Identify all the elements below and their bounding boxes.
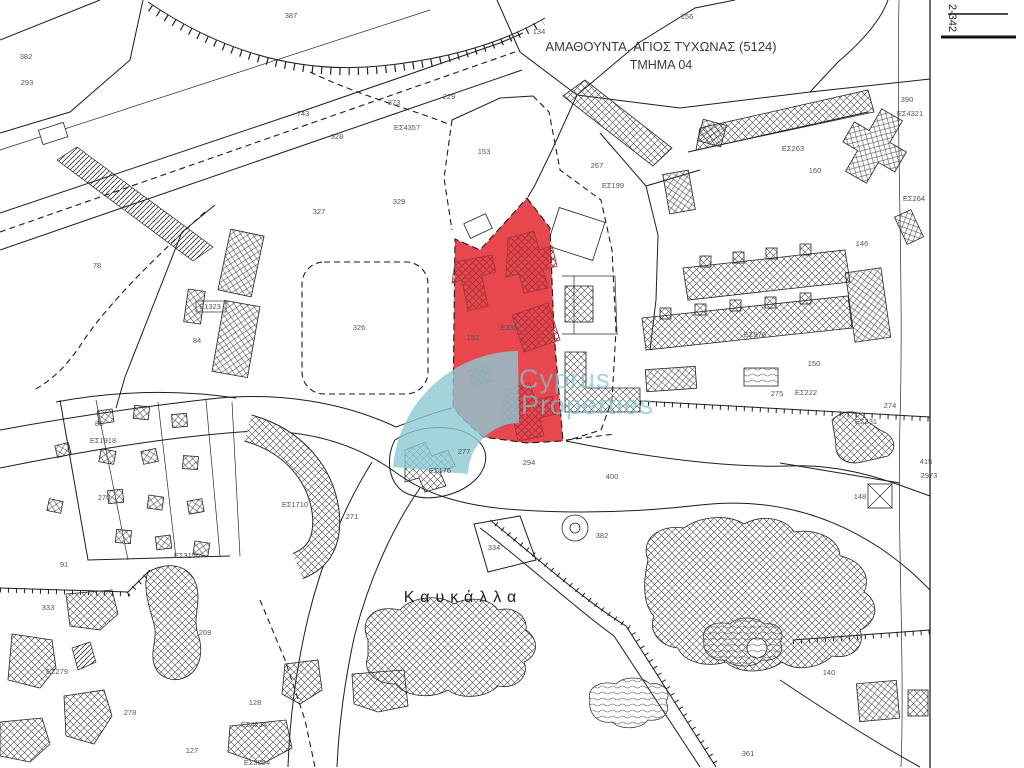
parcel-label: 327	[313, 207, 326, 216]
parcel-label: 274	[884, 401, 897, 410]
parcel-label: Ε335	[500, 323, 518, 332]
parcel-label: 140	[823, 668, 836, 677]
parcel-label: 2973	[921, 471, 938, 480]
parcel-label: 91	[60, 560, 68, 569]
parcel-label: 128	[249, 698, 262, 707]
parcel-label: 84	[193, 336, 201, 345]
parcel-label: ΕΣ976	[744, 330, 766, 339]
parcel-label: ΕΣ279	[46, 667, 68, 676]
building-148	[868, 484, 892, 508]
parcel-label: 328	[331, 132, 344, 141]
parcel-label: 294	[523, 458, 536, 467]
parcel-label: Ε1323	[199, 302, 221, 311]
parcel-label: 334	[488, 543, 501, 552]
parcel-label: ΕΣ1918	[90, 436, 116, 445]
parcel-label: ΕΣ1710	[282, 500, 308, 509]
parcel-label: ΕΣ3156	[174, 551, 200, 560]
parcel-label: 275	[771, 389, 784, 398]
parcel-label: 415	[920, 457, 933, 466]
parcel-label: 148	[854, 492, 867, 501]
parcel-label: ΕΣ264	[903, 194, 925, 203]
parcel-label: ΕΣ231	[855, 417, 877, 426]
parcel-label: ΕΣ222	[795, 388, 817, 397]
parcel-label: 160	[809, 166, 822, 175]
parcel-label: 153	[478, 147, 491, 156]
parcel-label: 270	[98, 493, 111, 502]
sheet-margin: 2-342	[930, 0, 1024, 768]
map-title: ΑΜΑΘΟΥΝΤΑ, ΑΓΙΟΣ ΤΥΧΩΝΑΣ (5124)	[545, 39, 776, 54]
place-name: Καυκάλλα	[404, 589, 523, 606]
parcel-label: 361	[742, 749, 755, 758]
parcel-label: 400	[606, 472, 619, 481]
parcel-label: 86	[95, 419, 103, 428]
map-subtitle: ΤΜΗΜΑ 04	[630, 58, 693, 72]
parcel-label: 78	[93, 261, 101, 270]
parcel-label: 269	[199, 628, 212, 637]
parcel-label: ΕΣ3094	[244, 758, 270, 767]
parcel-label: 150	[808, 359, 821, 368]
parcel-label: 382	[20, 52, 33, 61]
parcel-label: 382	[596, 531, 609, 540]
parcel-label: 387	[285, 11, 298, 20]
parcel-label: 390	[901, 95, 914, 104]
parcel-label: 267	[591, 161, 604, 170]
sheet-reference: 2-342	[946, 4, 958, 32]
parcel-label: 743	[297, 109, 310, 118]
parcel-label: 134	[533, 27, 546, 36]
watermark-line2: Properties	[521, 390, 654, 420]
parcel-label: 146	[856, 239, 869, 248]
parcel-label: 326	[353, 323, 366, 332]
map-canvas: Cyprus Properties 2-342 ΑΜΑΘΟΥΝΤΑ, ΑΓΙΟΣ…	[0, 0, 1024, 768]
parcel-label: ΕΣ4234	[241, 720, 267, 729]
cadastral-map-sheet: Cyprus Properties 2-342 ΑΜΑΘΟΥΝΤΑ, ΑΓΙΟΣ…	[0, 0, 1024, 768]
parcel-label: 127	[186, 746, 199, 755]
parcel-label: 333	[42, 603, 55, 612]
parcel-label: 278	[124, 708, 137, 717]
parcel-label: ΕΣ176	[429, 466, 451, 475]
parcel-label: 293	[21, 78, 34, 87]
parcel-label: 277	[458, 447, 471, 456]
parcel-label: ΕΣ263	[782, 144, 804, 153]
parcel-label: 329	[393, 197, 406, 206]
parcel-label: ΕΣ199	[602, 181, 624, 190]
parcel-label: 373	[388, 98, 401, 107]
parcel-label: 229	[443, 92, 456, 101]
parcel-label: 152	[467, 333, 480, 342]
parcel-label: 156	[681, 12, 694, 21]
parcel-label: ΕΣ4321	[897, 109, 923, 118]
parcel-label: ΕΣ4357	[394, 123, 420, 132]
parcel-label: 271	[346, 512, 359, 521]
